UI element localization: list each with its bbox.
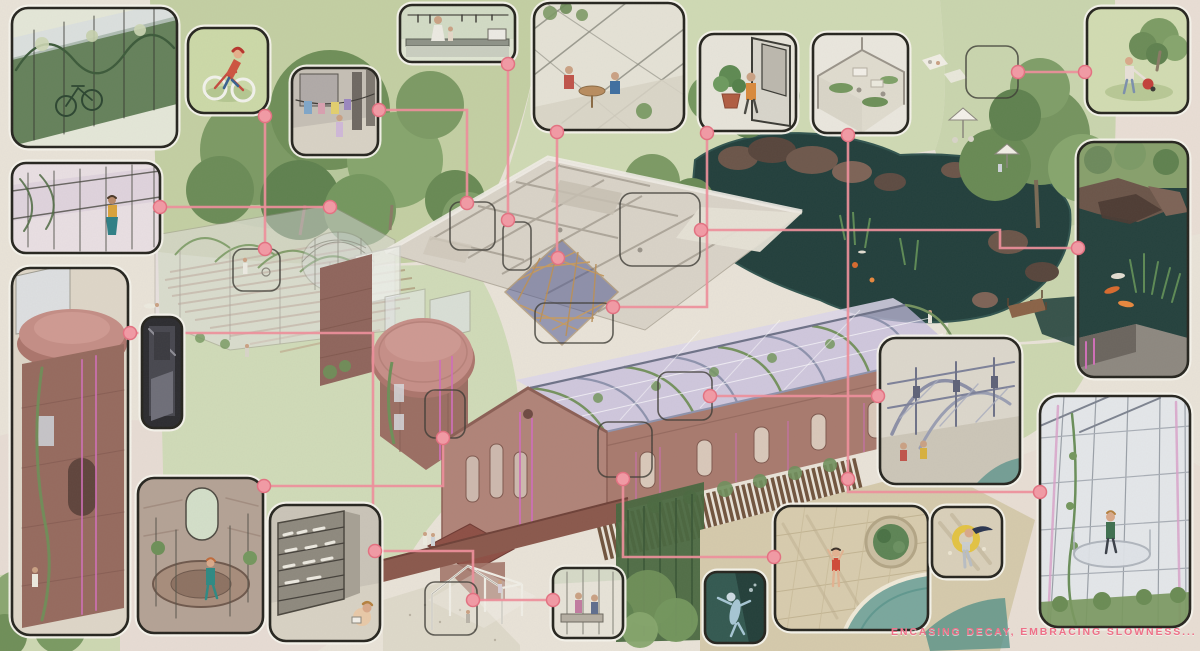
isometric-masterplan bbox=[0, 0, 1200, 651]
paper-grain bbox=[0, 0, 1200, 651]
architectural-illustration: ENCASING DECAY, EMBRACING SLOWNESS... bbox=[0, 0, 1200, 651]
tagline: ENCASING DECAY, EMBRACING SLOWNESS... bbox=[891, 626, 1197, 638]
